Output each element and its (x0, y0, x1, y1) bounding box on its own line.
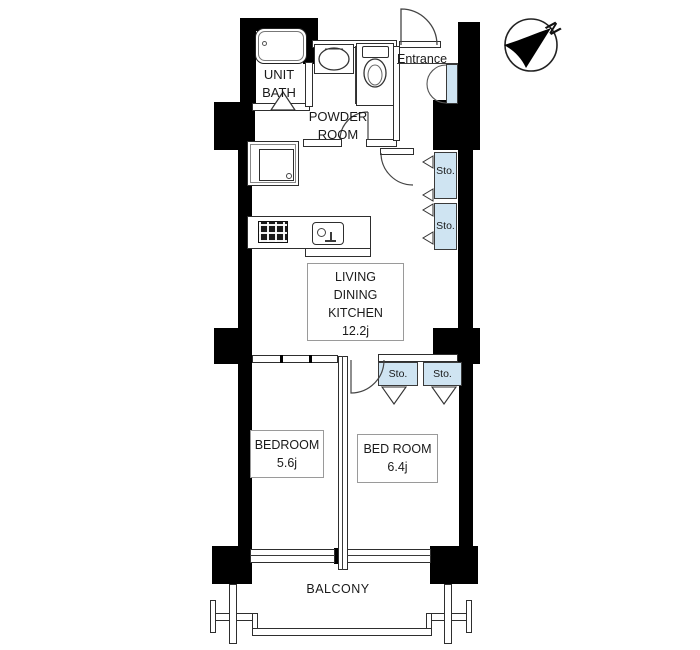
storage-door-triangle (423, 156, 433, 168)
storage-door-triangle (423, 232, 433, 244)
label-bedroom-left-name: BEDROOM (251, 436, 323, 454)
ldk-door-arc (381, 153, 413, 185)
label-bedroom-left: BEDROOM 5.6j (250, 430, 324, 478)
label-bedroom-right-name: BED ROOM (358, 440, 437, 458)
label-unit-bath-line2: BATH (252, 84, 306, 102)
label-ldk: LIVING DINING KITCHEN 12.2j (307, 263, 404, 341)
label-unit-bath-line1: UNIT (252, 66, 306, 84)
floor-plan: N UNIT BATH POWDER ROOM Entrance Sto. St… (0, 0, 700, 650)
label-ldk-line2: DINING (308, 286, 403, 304)
label-bedroom-right: BED ROOM 6.4j (357, 434, 438, 483)
label-ldk-size: 12.2j (308, 322, 403, 340)
label-balcony: BALCONY (288, 580, 388, 598)
entrance-door-arc (401, 9, 437, 45)
storage-mid-door-v (382, 387, 406, 404)
label-ldk-line3: KITCHEN (308, 304, 403, 322)
label-powder-line2: ROOM (301, 126, 375, 144)
compass: N (504, 18, 564, 71)
label-storage-mid-1: Sto. (378, 368, 418, 380)
label-ldk-line1: LIVING (308, 268, 403, 286)
label-storage-right-1: Sto. (434, 165, 457, 177)
storage-door-triangle (423, 204, 433, 216)
shoe-closet-door-arcs (427, 65, 446, 103)
label-powder-room: POWDER ROOM (301, 108, 375, 144)
label-entrance: Entrance (397, 50, 455, 68)
label-unit-bath: UNIT BATH (252, 66, 306, 102)
label-powder-line1: POWDER (301, 108, 375, 126)
storage-door-triangle (423, 189, 433, 201)
storage-mid-door-v (432, 387, 456, 404)
label-bedroom-right-size: 6.4j (358, 458, 437, 476)
label-bedroom-left-size: 5.6j (251, 454, 323, 472)
toilet-bowl (364, 59, 386, 87)
label-storage-mid-2: Sto. (423, 368, 462, 380)
label-storage-right-2: Sto. (434, 220, 457, 232)
wash-basin (319, 48, 349, 70)
